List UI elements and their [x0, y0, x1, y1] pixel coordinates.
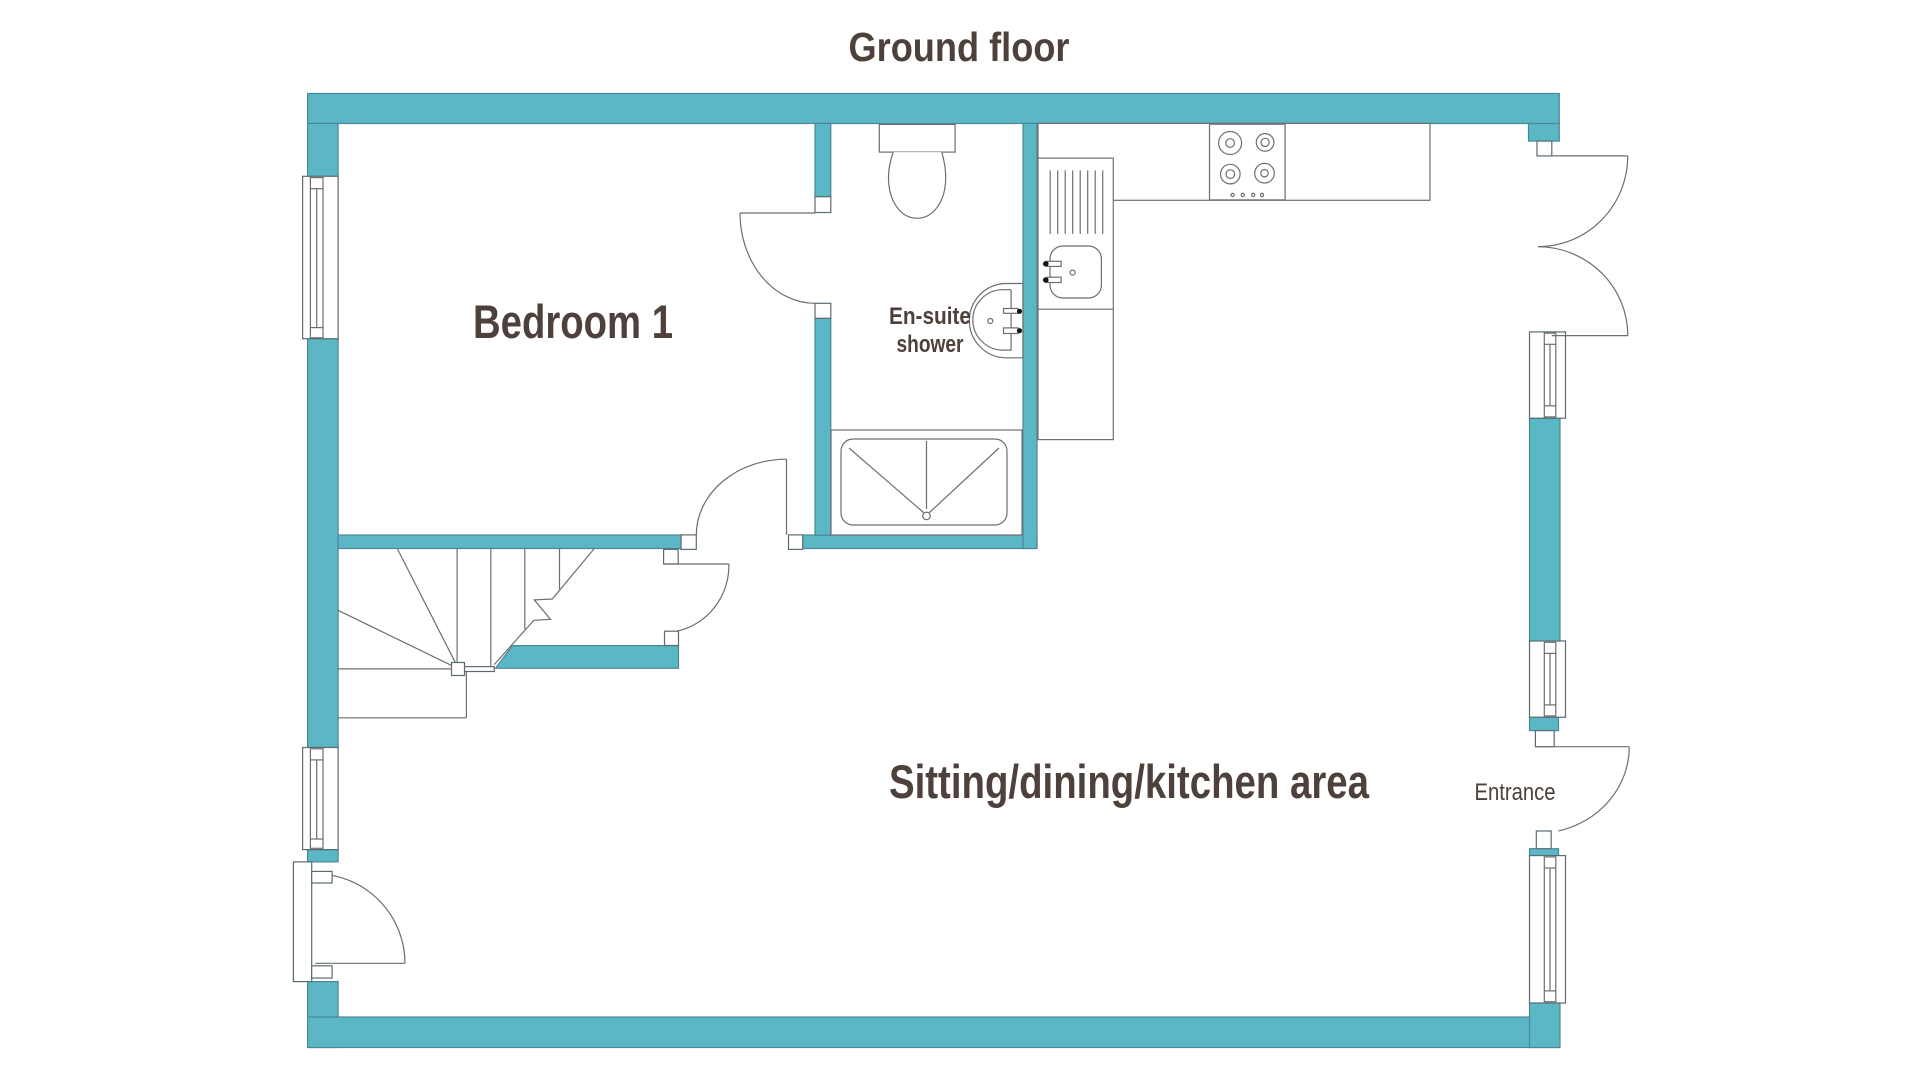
- svg-text:Ground floor: Ground floor: [849, 24, 1070, 70]
- svg-text:Entrance: Entrance: [1475, 779, 1556, 806]
- svg-text:shower: shower: [897, 331, 964, 358]
- svg-text:Bedroom 1: Bedroom 1: [473, 295, 673, 348]
- svg-text:En-suite: En-suite: [889, 303, 971, 330]
- svg-text:Sitting/dining/kitchen area: Sitting/dining/kitchen area: [889, 755, 1370, 808]
